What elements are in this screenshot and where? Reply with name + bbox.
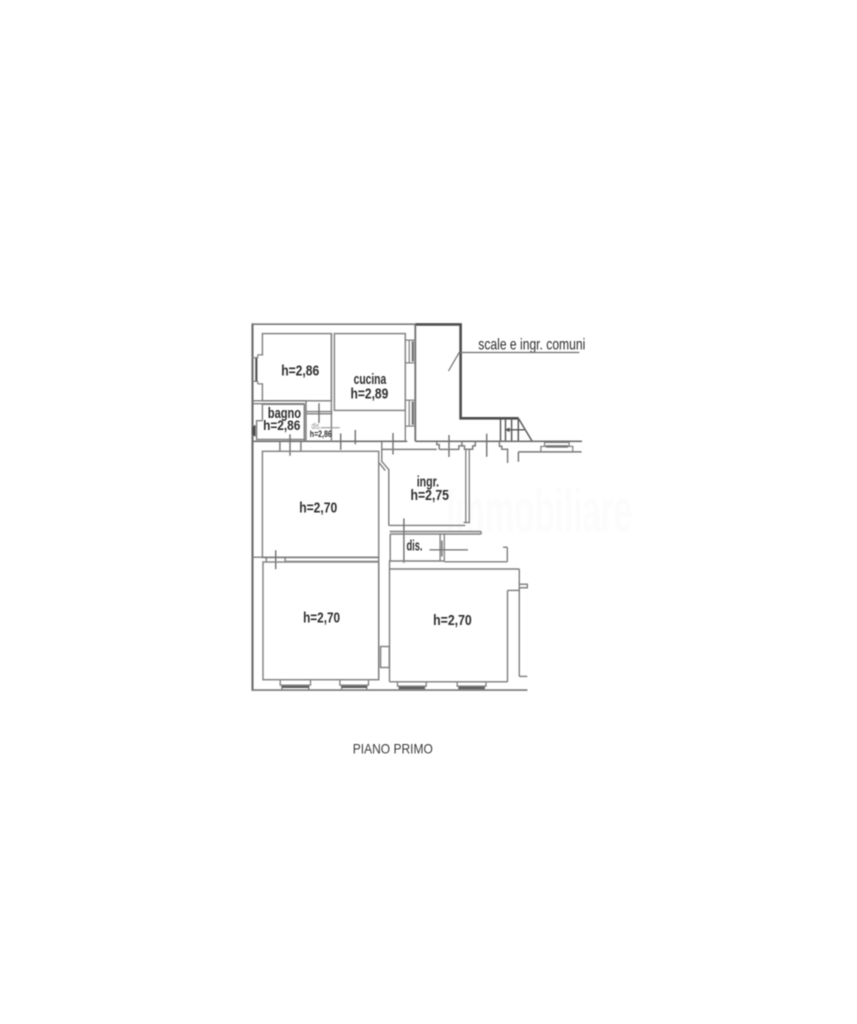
svg-text:Immobiliare: Immobiliare	[446, 477, 632, 546]
svg-text:h=2,89: h=2,89	[351, 385, 389, 402]
svg-text:dis.: dis.	[407, 537, 423, 554]
svg-text:h=2,86: h=2,86	[310, 429, 332, 440]
svg-text:PIANO PRIMO: PIANO PRIMO	[353, 741, 433, 757]
svg-text:h=2,70: h=2,70	[433, 612, 472, 629]
svg-text:h=2,70: h=2,70	[299, 499, 337, 516]
svg-text:h=2,75: h=2,75	[411, 487, 450, 504]
svg-text:h=2,86: h=2,86	[263, 418, 301, 433]
svg-text:scale e ingr. comuni: scale e ingr. comuni	[478, 337, 585, 354]
svg-text:h=2,86: h=2,86	[281, 363, 319, 380]
svg-text:h=2,70: h=2,70	[303, 610, 340, 627]
